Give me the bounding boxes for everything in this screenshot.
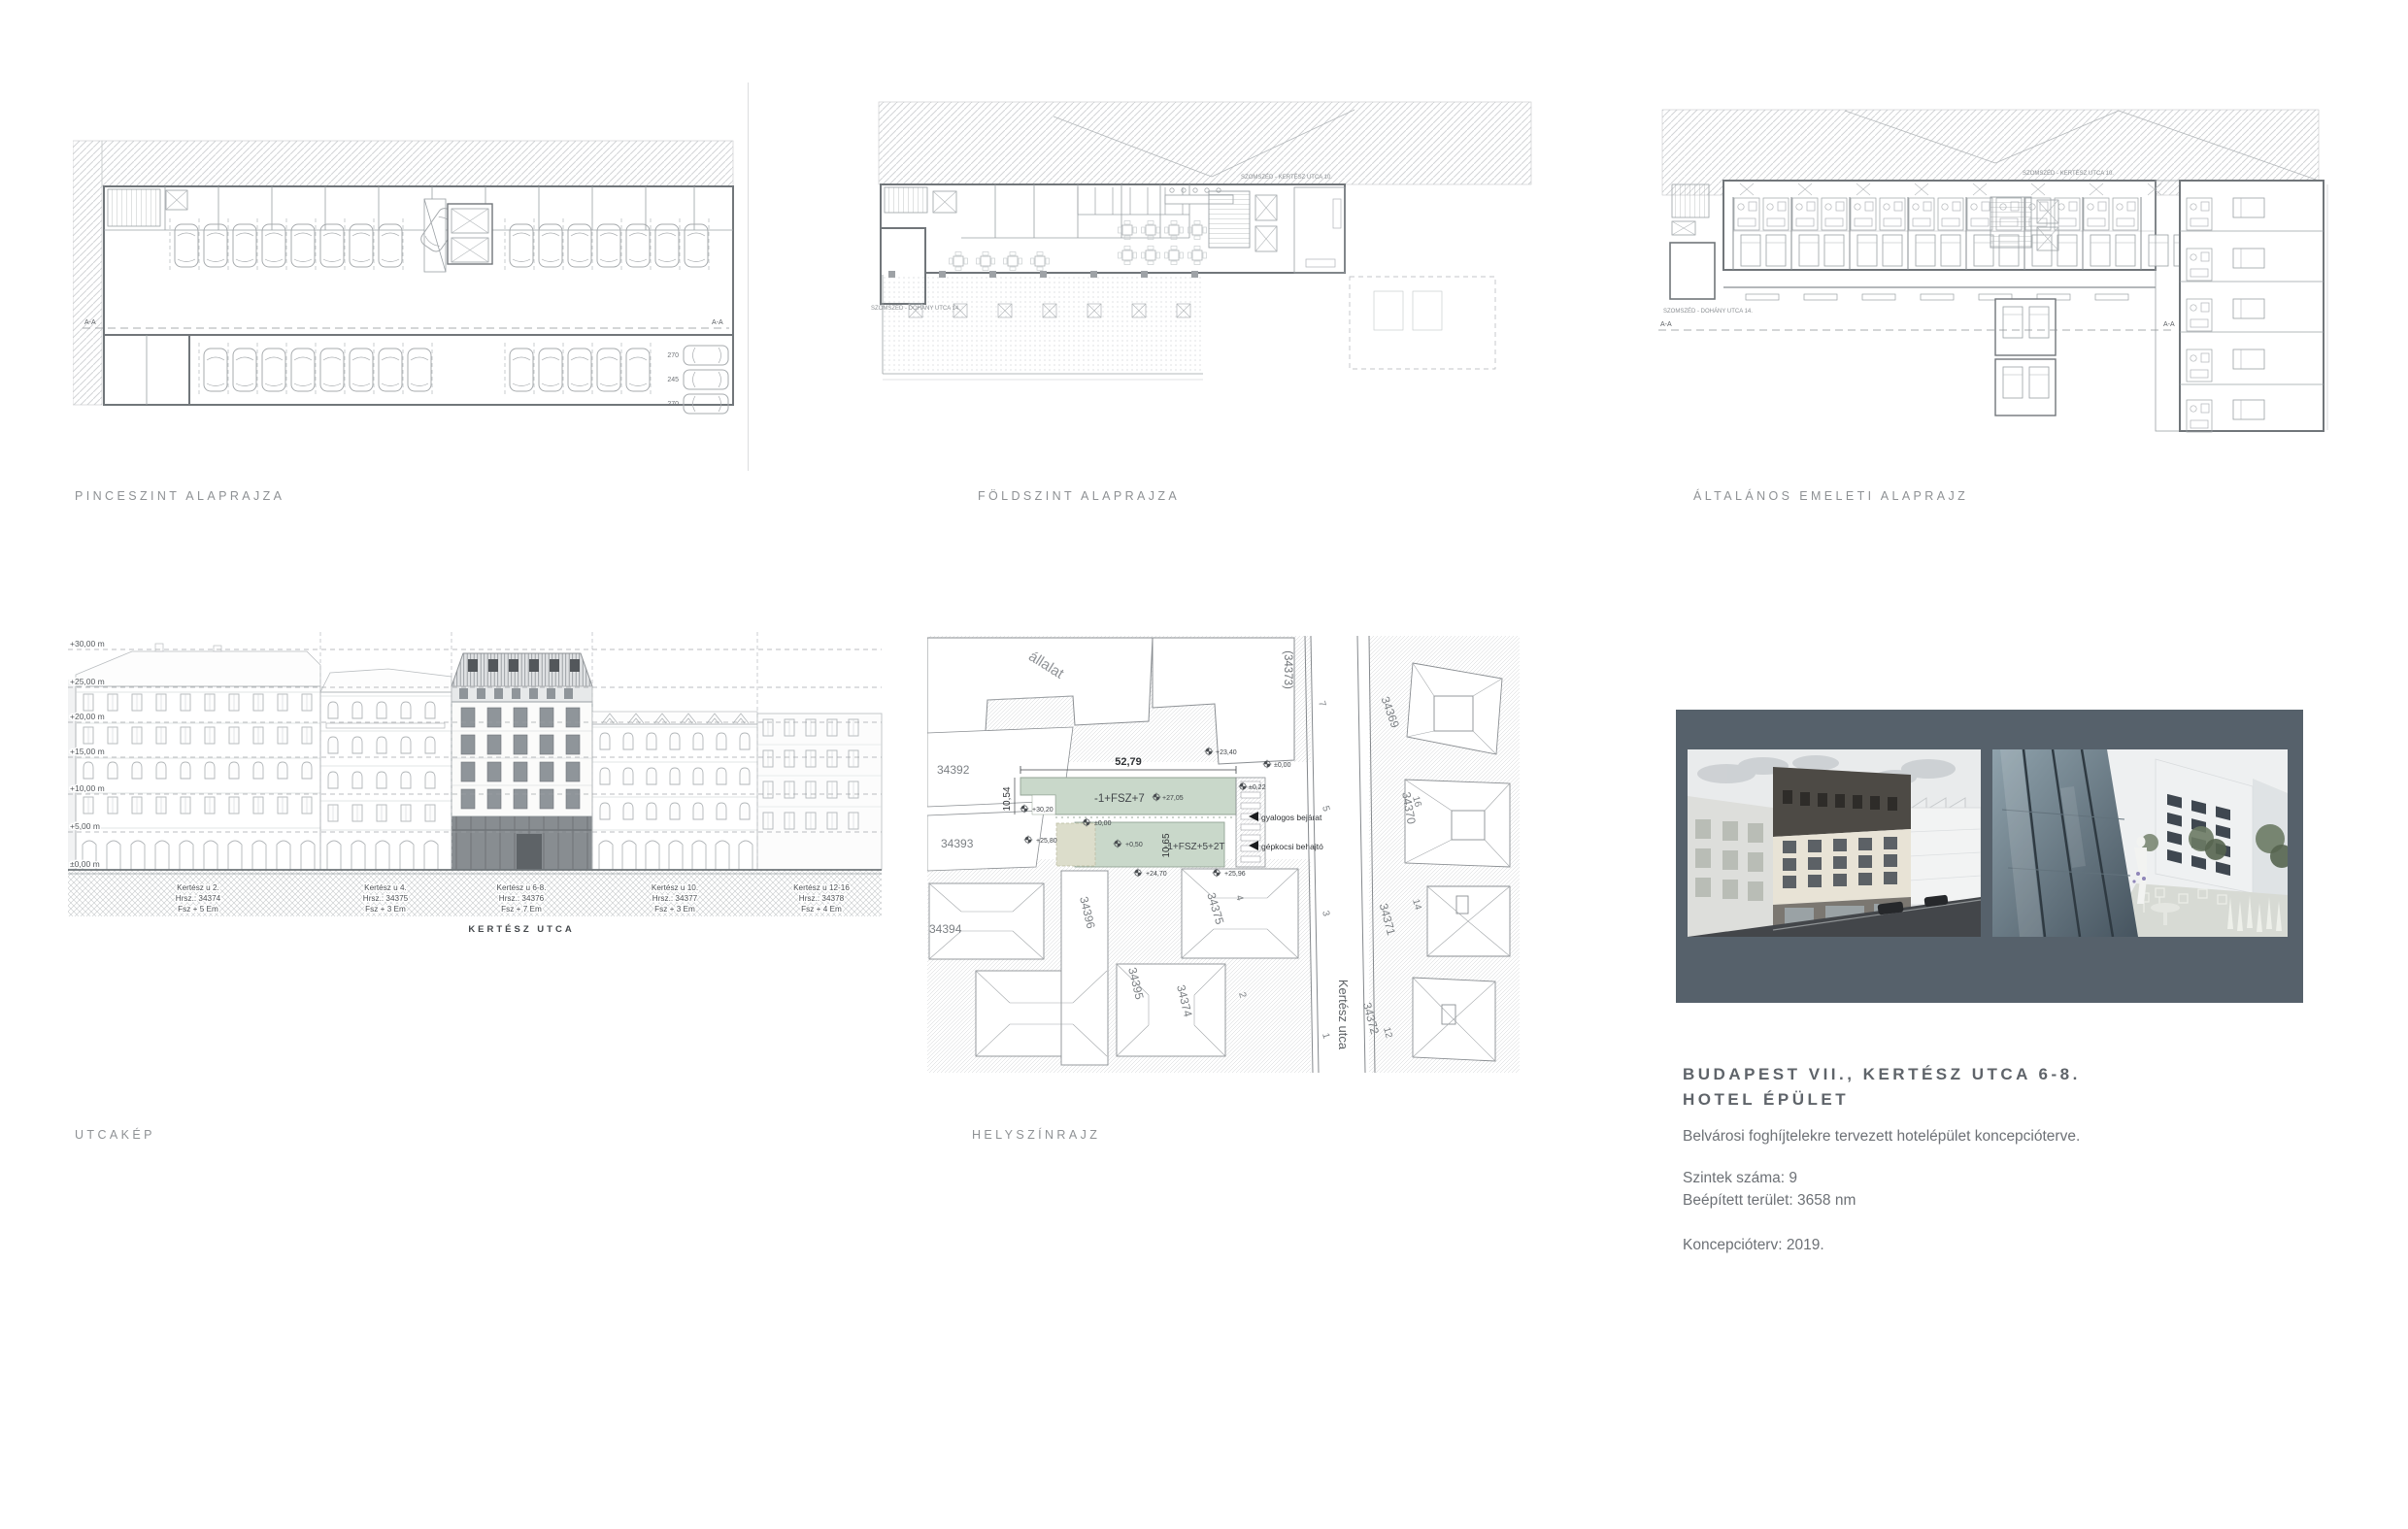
building-floors: Fsz + 5 Em	[178, 905, 218, 914]
ground-floor-plan-drawing: SZOMSZÉD - KERTÉSZ UTCA 10. SZOMSZÉD - D…	[869, 83, 1539, 451]
building-floors: Fsz + 7 Em	[501, 905, 542, 914]
elevation-building-caption: Kertész u 6-8. Hrsz.: 34376 Fsz + 7 Em	[497, 883, 547, 914]
plan-caption-ground: FÖLDSZINT ALAPRAJZA	[978, 489, 1180, 503]
elevation-building-caption: Kertész u 4. Hrsz.: 34375 Fsz + 3 Em	[363, 883, 409, 914]
level-label-10: +10,00 m	[70, 783, 105, 793]
dim-52-79: 52,79	[1115, 756, 1142, 768]
render-street-view	[1688, 749, 1981, 937]
project-stat-area: Beépített terület: 3658 nm	[1683, 1190, 1856, 1213]
neighbor-label-bottom: SZOMSZÉD - DOHÁNY UTCA 14.	[871, 305, 960, 312]
spot-level: +24,70	[1146, 871, 1167, 878]
spot-level: ±0,22	[1249, 784, 1266, 791]
spot-level: ±0,00	[1094, 820, 1112, 827]
level-label-15: +15,00 m	[70, 747, 105, 756]
building-name: Kertész u 2.	[177, 883, 219, 892]
plan-caption-upper: ÁLTALÁNOS EMELETI ALAPRAJZ	[1693, 489, 1968, 503]
portfolio-page: A-A A-A 270 245 270 SZOMSZÉD - KERTÉSZ U…	[0, 0, 2408, 1529]
building-name: Kertész u 6-8.	[497, 883, 547, 892]
level-label-25: +25,00 m	[70, 677, 105, 686]
project-year: Koncepcióterv: 2019.	[1683, 1235, 1824, 1257]
section-mark-right: A-A	[712, 319, 723, 326]
parcel-number: 34392	[937, 763, 970, 777]
parcel-number: 34394	[929, 922, 962, 936]
section-mark-left: A-A	[84, 319, 96, 326]
building-name: Kertész u 4.	[364, 883, 407, 892]
section-mark-left: A-A	[1660, 321, 1672, 328]
building-name: Kertész u 10.	[652, 883, 698, 892]
building-hrsz: Hrsz.: 34378	[799, 894, 845, 903]
level-label-5: +5,00 m	[70, 821, 100, 831]
building-floors: Fsz + 4 Em	[801, 905, 842, 914]
building-hrsz: Hrsz.: 34377	[652, 894, 698, 903]
level-label-30: +30,00 m	[70, 639, 105, 648]
building-floors: Fsz + 3 Em	[654, 905, 695, 914]
project-title-line2: HOTEL ÉPÜLET	[1683, 1087, 2081, 1113]
stall-dim-1: 270	[667, 352, 679, 359]
elevation-building-caption: Kertész u 2. Hrsz.: 34374 Fsz + 5 Em	[176, 883, 221, 914]
spot-level: +0,50	[1125, 842, 1143, 848]
upper-floor-plan-drawing: SZOMSZÉD - KERTÉSZ UTCA 10. A-A A-A SZOM…	[1651, 95, 2330, 456]
project-description: Belvárosi foghíjtelekre tervezett hotelé…	[1683, 1126, 2080, 1148]
spot-level: +27,05	[1162, 795, 1184, 802]
plan-caption-basement: PINCESZINT ALAPRAJZA	[75, 489, 284, 503]
spot-level: +23,40	[1216, 749, 1237, 756]
section-mark-right: A-A	[2163, 321, 2175, 328]
neighbor-label-top: SZOMSZÉD - KERTÉSZ UTCA 10.	[1241, 174, 1332, 181]
building-hrsz: Hrsz.: 34375	[363, 894, 409, 903]
parcel-number: 34393	[941, 837, 974, 850]
massing-label-main: -1+FSZ+7	[1094, 793, 1145, 805]
spot-level: +25,96	[1224, 871, 1246, 878]
site-plan-drawing: állalat 52,79 10,54 10,65 -1+FSZ+7 -1+FS…	[927, 636, 1520, 1073]
spot-level: +30,20	[1032, 807, 1053, 814]
stall-dim-2: 245	[667, 377, 679, 383]
street-parcel-number: (34373)	[1282, 650, 1293, 689]
building-hrsz: Hrsz.: 34376	[499, 894, 545, 903]
page-divider-line	[748, 83, 749, 471]
basement-floor-plan-drawing: A-A A-A 270 245 270	[73, 73, 743, 461]
spot-level: +25,80	[1036, 838, 1057, 845]
level-label-0: ±0,00 m	[70, 859, 100, 869]
elevation-building-caption: Kertész u 12-16 Hrsz.: 34378 Fsz + 4 Em	[793, 883, 850, 914]
street-elevation-drawing: +30,00 m +25,00 m +20,00 m +15,00 m +10,…	[68, 626, 884, 951]
building-hrsz: Hrsz.: 34374	[176, 894, 221, 903]
street-name-caption: KERTÉSZ UTCA	[468, 924, 574, 935]
project-title-line1: BUDAPEST VII., KERTÉSZ UTCA 6-8.	[1683, 1062, 2081, 1087]
project-title-block: BUDAPEST VII., KERTÉSZ UTCA 6-8. HOTEL É…	[1683, 1062, 2081, 1112]
neighbor-label-top: SZOMSZÉD - KERTÉSZ UTCA 10.	[2023, 170, 2114, 177]
building-floors: Fsz + 3 Em	[365, 905, 406, 914]
massing-label-rear: -1+FSZ+5+2T	[1164, 842, 1225, 852]
dim-10-54: 10,54	[1002, 786, 1013, 811]
street-name: Kertész utca	[1336, 980, 1351, 1050]
elevation-building-caption: Kertész u 10. Hrsz.: 34377 Fsz + 3 Em	[652, 883, 698, 914]
neighbor-label-bottom: SZOMSZÉD - DOHÁNY UTCA 14.	[1663, 308, 1753, 315]
building-name: Kertész u 12-16	[793, 883, 850, 892]
pedestrian-entrance-label: gyalogos bejárat	[1261, 813, 1322, 822]
render-terrace-view	[1992, 749, 2288, 937]
project-stat-levels: Szintek száma: 9	[1683, 1168, 1856, 1190]
caption-helyszinrajz: HELYSZÍNRAJZ	[972, 1128, 1100, 1142]
caption-utcakep: UTCAKÉP	[75, 1128, 155, 1142]
project-stats: Szintek száma: 9 Beépített terület: 3658…	[1683, 1168, 1856, 1213]
stall-dim-3: 270	[667, 401, 679, 408]
renders-panel	[1676, 710, 2303, 1003]
spot-level: ±0,00	[1274, 762, 1291, 769]
level-label-20: +20,00 m	[70, 712, 105, 721]
